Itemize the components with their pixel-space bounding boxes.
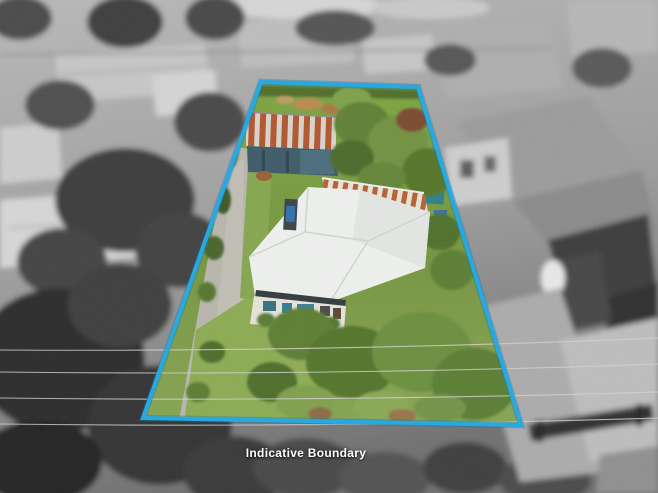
aerial-property-photo: Indicative Boundary <box>0 0 658 493</box>
aerial-photo-scene <box>0 0 658 493</box>
photo-grain <box>0 0 658 493</box>
